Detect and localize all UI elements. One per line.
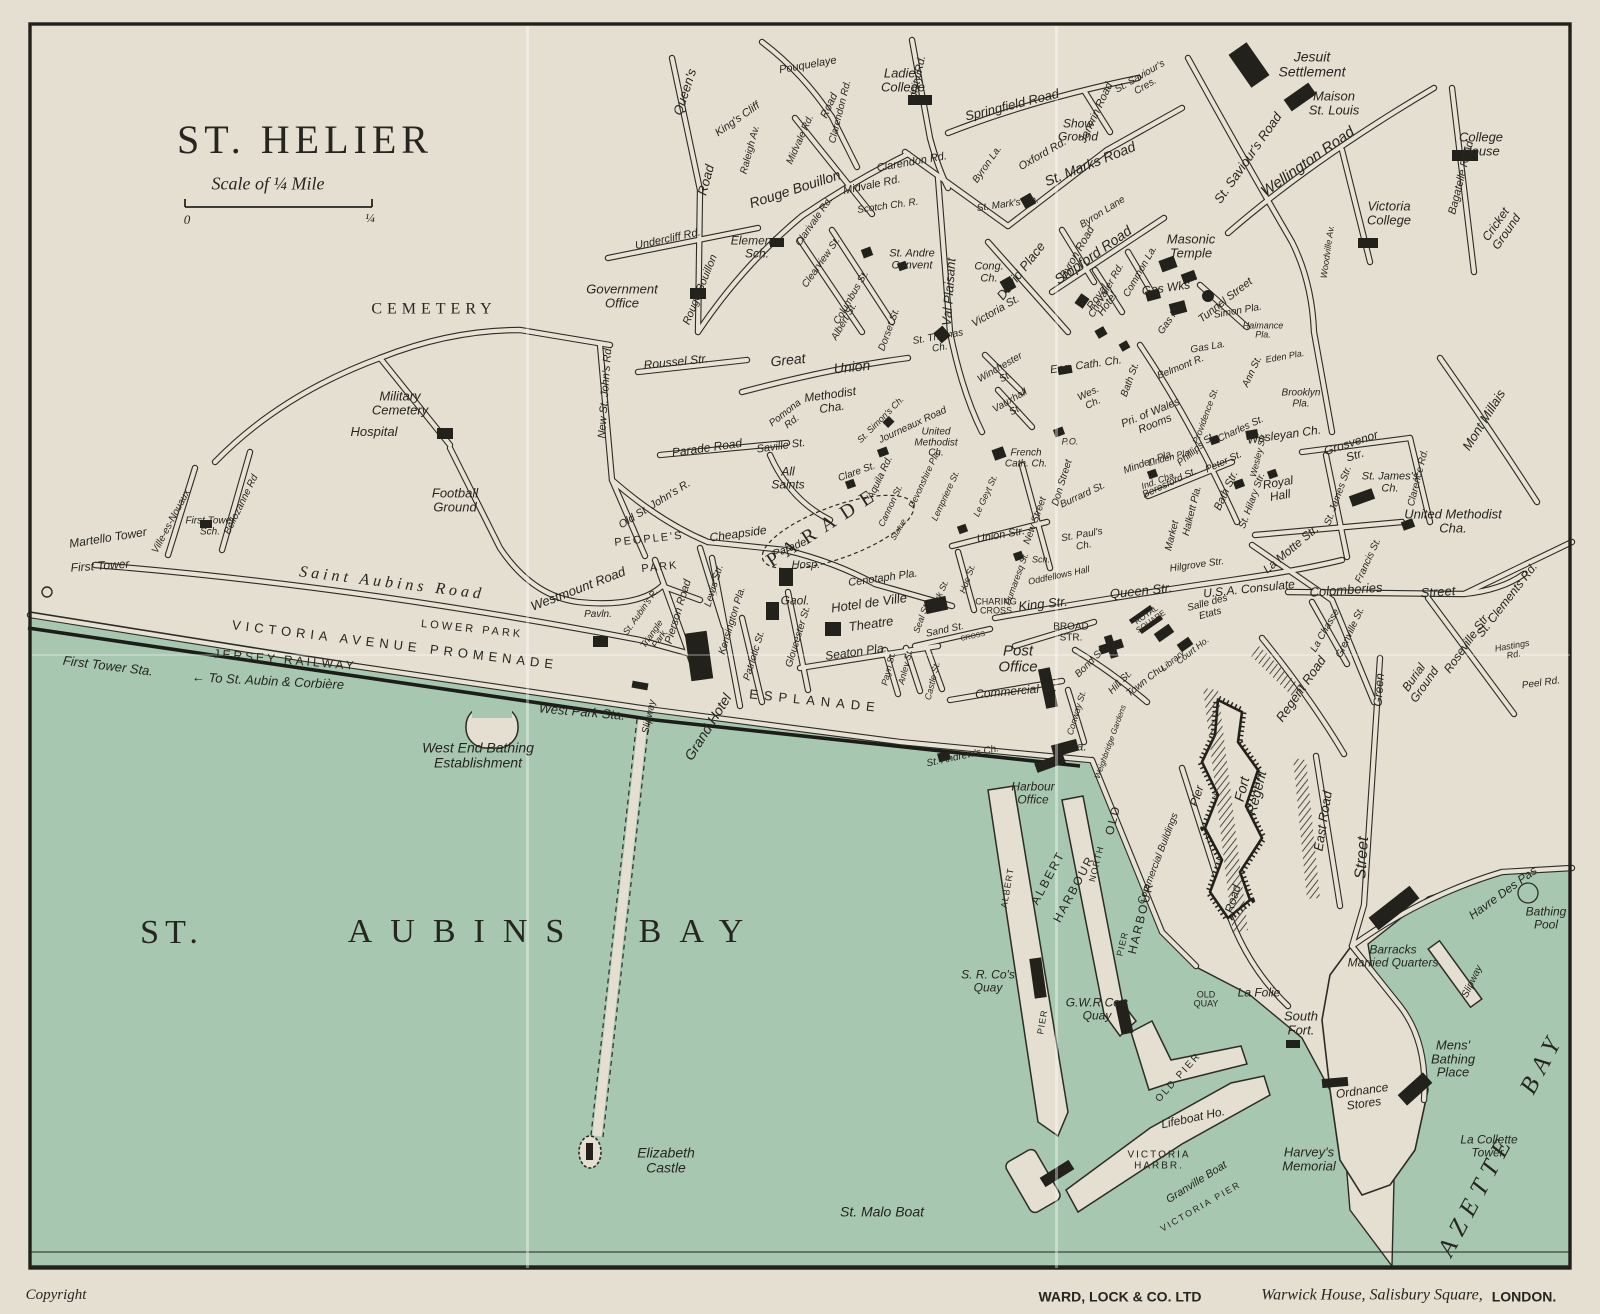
- building-block: [770, 238, 784, 247]
- building-block: [1452, 150, 1478, 161]
- building-block: [779, 568, 793, 586]
- building-block: [200, 520, 212, 528]
- building-block: [1286, 1040, 1300, 1048]
- map-sheet: { "colors":{"paper":"#e4dfd1","sea":"#a7…: [0, 0, 1600, 1314]
- paper-fold: [1055, 26, 1058, 1268]
- paper-fold: [526, 26, 529, 1268]
- building-block: [437, 428, 453, 439]
- map-page: ST. HELIERScale of ¼ Mile0¼ST.AUBINSBAYA…: [0, 0, 1600, 1314]
- building-block: [766, 602, 779, 620]
- building-block: [1358, 238, 1378, 248]
- building-block: [825, 622, 841, 636]
- building-block: [908, 95, 932, 105]
- paper-fold: [32, 654, 1570, 656]
- building-block: [690, 288, 706, 299]
- building-block: [593, 636, 608, 647]
- map-graphics: [0, 0, 1600, 1314]
- martello-tower-mark: [42, 587, 52, 597]
